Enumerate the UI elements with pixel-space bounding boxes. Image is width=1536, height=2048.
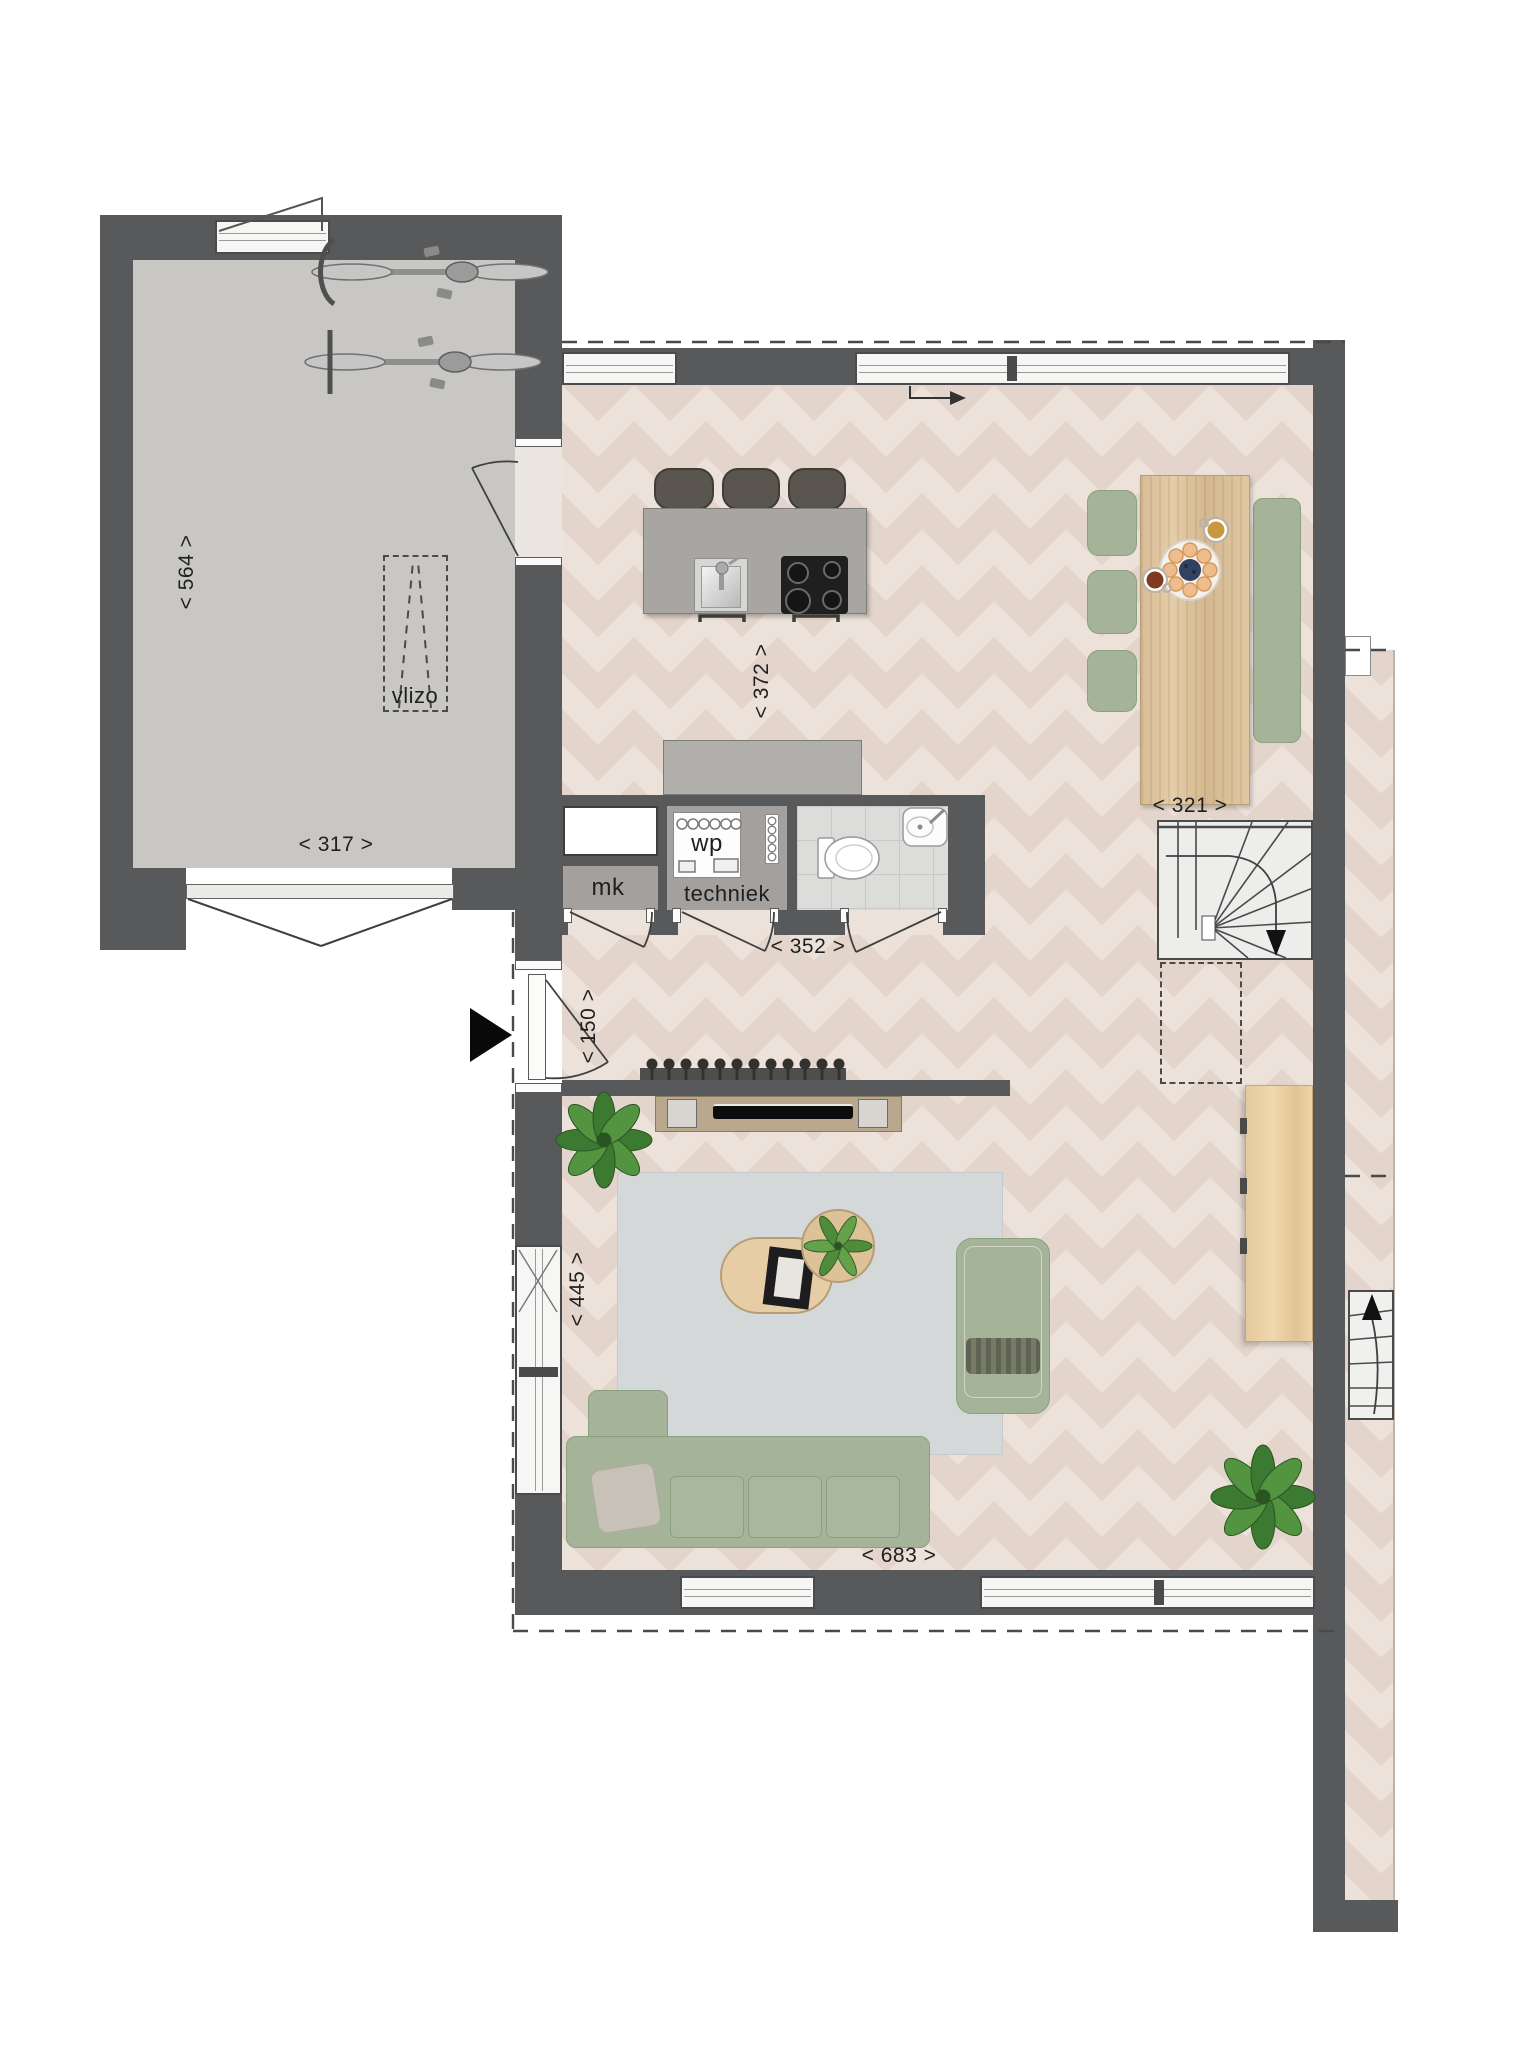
- staircase: [1157, 820, 1313, 960]
- toilet-door-opening: [845, 910, 943, 935]
- daybed-pillow: [966, 1338, 1040, 1374]
- throw-pillow: [589, 1461, 662, 1534]
- label-vlizo: vlizo: [392, 683, 439, 709]
- kitchen-window: [562, 352, 677, 385]
- dining-chair: [1087, 570, 1137, 634]
- dining-chair: [1087, 650, 1137, 712]
- rug: [617, 1172, 1003, 1455]
- sofa-seat-cushion: [826, 1476, 900, 1538]
- toilet-room-floor: [797, 806, 948, 910]
- neighbor-staircase: [1348, 1290, 1394, 1420]
- dimension-entry: < 150 >: [577, 989, 601, 1064]
- door-jamb: [515, 1083, 562, 1093]
- garage-bottom-left-wall: [100, 868, 186, 950]
- door-jamb: [563, 908, 572, 923]
- magazine-cover-art: [774, 1257, 805, 1300]
- door-jamb: [840, 908, 849, 923]
- neighbor-floor-strip: [1345, 650, 1395, 1900]
- door-jamb: [515, 438, 562, 447]
- doormat: [563, 806, 658, 856]
- label-techniek: techniek: [684, 881, 770, 907]
- living-room-south-window-2: [980, 1576, 1315, 1609]
- sofa-seat-cushion: [748, 1476, 822, 1538]
- dimension-living-depth: < 445 >: [566, 1252, 590, 1327]
- fireplace-speaker: [858, 1099, 888, 1128]
- door-jamb: [770, 908, 779, 923]
- label-wp: wp: [691, 830, 723, 858]
- sideboard: [1245, 1085, 1313, 1342]
- floor-plan: vlizo mk wp techniek < 564 > < 317 > < 3…: [0, 0, 1536, 2048]
- fireplace-slot: [713, 1104, 853, 1119]
- coffee-table-round: [801, 1209, 875, 1283]
- understair-dashed-outline: [1160, 962, 1242, 1084]
- divider-wall-cap: [562, 1080, 1010, 1096]
- dining-chair: [1087, 490, 1137, 556]
- door-jamb: [672, 908, 681, 923]
- entry-arrow-icon: [470, 1008, 512, 1062]
- bar-stool: [654, 468, 714, 510]
- dimension-garage-width: < 317 >: [299, 833, 374, 857]
- mk-door-opening: [568, 910, 650, 935]
- garage-to-kitchen-door-opening: [515, 445, 562, 560]
- techniek-door-opening: [678, 910, 774, 935]
- door-jamb: [515, 557, 562, 566]
- sofa-seat-cushion: [670, 1476, 744, 1538]
- da ybed-inner-cushion: [964, 1246, 1042, 1398]
- kitchen-wall-cabinet: [663, 740, 862, 795]
- garage-door-leaves: [188, 899, 452, 946]
- door-jamb: [515, 960, 562, 970]
- door-jamb: [646, 908, 655, 923]
- dimension-living-width: < 683 >: [862, 1544, 937, 1568]
- living-room-west-window: [515, 1245, 562, 1495]
- dimension-kitchen: < 372 >: [750, 644, 774, 719]
- dimension-garage-depth: < 564 >: [175, 535, 199, 610]
- garage-door-sill: [186, 884, 454, 899]
- neighbor-door-niche: [1345, 636, 1371, 676]
- dining-window: [855, 352, 1290, 385]
- bar-stool: [722, 468, 780, 510]
- neighbor-bottom-wall: [1345, 1900, 1398, 1932]
- kitchen-sink-bowl: [701, 566, 741, 608]
- label-mk: mk: [592, 874, 625, 902]
- living-room-south-window-1: [680, 1576, 815, 1609]
- dining-bench: [1253, 498, 1301, 743]
- garage-top-wall: [100, 215, 562, 260]
- party-wall-right: [1313, 340, 1345, 1932]
- door-jamb: [938, 908, 947, 923]
- bar-stool: [788, 468, 846, 510]
- dimension-stairs: < 321 >: [1153, 794, 1228, 818]
- garage-left-wall: [100, 215, 133, 950]
- garage-window: [215, 220, 330, 254]
- dining-table: [1140, 475, 1250, 805]
- manifold-strip: [765, 814, 779, 864]
- cooktop: [781, 556, 848, 614]
- dimension-utility: < 352 >: [771, 935, 846, 959]
- fireplace-speaker: [667, 1099, 697, 1128]
- front-door-leaf: [528, 974, 546, 1080]
